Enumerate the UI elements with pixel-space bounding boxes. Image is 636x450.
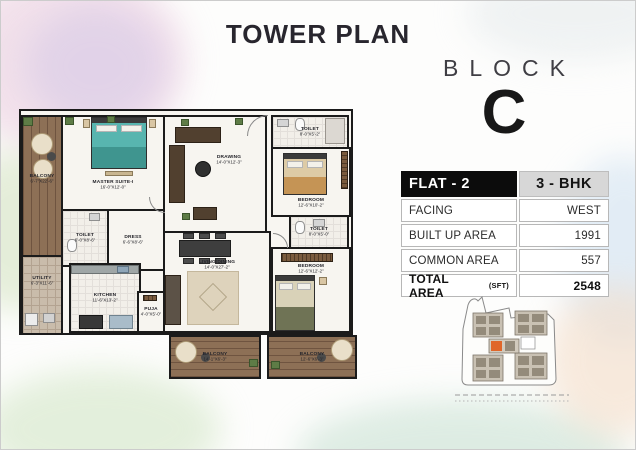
toilet-sink <box>313 219 325 227</box>
wardrobe <box>341 151 348 189</box>
pillow <box>307 161 323 168</box>
master-bed-headboard <box>92 118 146 123</box>
toilet-sink <box>89 213 100 221</box>
room-label: BALCONY <box>203 352 228 357</box>
room-label: TOILET <box>310 227 328 232</box>
pillow <box>96 125 117 132</box>
facing-value: WEST <box>519 199 609 222</box>
dining-chair <box>183 258 194 264</box>
balcony-table <box>47 152 56 161</box>
room-dims: 6'-6"X8'-6" <box>122 240 142 245</box>
bedroom-right-bed <box>283 153 327 195</box>
room-dims: 6'-7"X22'-6" <box>31 179 54 184</box>
bed-headboard <box>284 154 326 159</box>
pillow <box>121 125 142 132</box>
master-bed <box>91 117 147 169</box>
builtup-label: BUILT UP AREA <box>401 224 517 247</box>
common-label: COMMON AREA <box>401 249 517 272</box>
room-dims: 14'-0"X12'-3" <box>216 161 241 166</box>
bed-headboard <box>276 276 314 281</box>
living-sofa <box>165 275 181 325</box>
plant-icon <box>271 361 280 369</box>
room-label: TOILET <box>76 233 94 238</box>
room-label: PUJA <box>144 307 157 312</box>
room-dims: 11'-6"X13'-2" <box>92 298 117 303</box>
room-toilet-master: TOILET6'-0"X8'-6" <box>61 209 109 267</box>
bed-blanket <box>284 177 326 194</box>
key-plan-map <box>453 293 571 407</box>
dining-chair <box>183 233 194 239</box>
room-dims: 12'-6"X12'-2" <box>298 269 323 274</box>
watercolor-green-bottom <box>0 369 221 450</box>
stove <box>79 315 103 329</box>
block-letter: C <box>399 84 609 143</box>
kitchen-sink <box>117 266 129 273</box>
room-label: UTILITY <box>32 276 51 281</box>
nightstand <box>83 119 90 128</box>
plant-icon <box>235 118 243 125</box>
room-label: TOILET <box>301 127 319 132</box>
drawing-sofa-left <box>169 145 185 203</box>
room-dress: DRESS6'-6"X8'-6" <box>107 209 167 271</box>
builtup-value: 1991 <box>519 224 609 247</box>
key-plan <box>453 293 571 412</box>
plant-icon <box>107 116 115 123</box>
utility-sink <box>43 313 55 323</box>
room-dims: 12'-6"X6'-3" <box>301 357 324 362</box>
room-label: MASTER SUITE-I <box>93 180 134 185</box>
drawing-sofa-top <box>175 127 221 143</box>
room-dims: 8'-0"X5'-0" <box>309 232 329 237</box>
dining-chair <box>215 233 226 239</box>
balcony-chair <box>331 339 353 361</box>
plant-icon <box>182 213 190 220</box>
plant-icon <box>249 359 258 367</box>
fridge <box>109 315 133 329</box>
flat-details-table: FLAT - 2 3 - BHK FACING WEST BUILT UP AR… <box>401 171 609 297</box>
room-label: BALCONY <box>300 352 325 357</box>
room-dims: 14'-1"X6'-3" <box>204 357 227 362</box>
washing-machine <box>25 313 38 326</box>
pillow <box>297 283 311 290</box>
plant-icon <box>65 117 74 125</box>
nightstand <box>319 277 327 285</box>
wardrobe <box>281 253 333 262</box>
room-label: KITCHEN <box>94 293 116 298</box>
flat-number-cell: FLAT - 2 <box>401 171 517 197</box>
room-label: DRESS <box>124 235 141 240</box>
drawing-seat-bottom <box>193 207 217 220</box>
bed-blanket <box>276 307 314 330</box>
dining-table <box>179 240 231 257</box>
total-label-suffix: (SFT) <box>489 281 509 290</box>
room-label: DRAWING <box>217 155 241 160</box>
room-label: BALCONY <box>30 174 55 179</box>
room-label: BEDROOM <box>298 198 324 203</box>
balcony-chair <box>175 341 197 363</box>
room-label: BEDROOM <box>298 263 324 268</box>
plant-icon <box>23 117 33 126</box>
shower-area <box>325 118 345 144</box>
floor-plan: BALCONY6'-7"X22'-6" UTILITY6'-3"X11'-6" … <box>19 109 359 381</box>
room-dims: 8'-0"X5'-2" <box>300 132 320 137</box>
bedroom-bottom-bed <box>275 275 315 331</box>
room-dims: 12'-6"X10'-2" <box>298 204 323 209</box>
page-title: TOWER PLAN <box>1 19 635 50</box>
room-dims: 4'-0"X5'-0" <box>141 312 161 317</box>
room-dims: 14'-0"X27'-2" <box>204 266 229 271</box>
facing-label: FACING <box>401 199 517 222</box>
highlighted-flat <box>491 341 502 351</box>
room-dims: 6'-3"X11'-6" <box>31 282 54 287</box>
nightstand <box>149 119 156 128</box>
pillow <box>287 161 303 168</box>
master-bed-blanket <box>92 147 146 168</box>
toilet-wc <box>295 221 305 234</box>
bed-bench <box>105 171 133 176</box>
block-heading: BLOCK C <box>399 55 609 143</box>
pillow <box>279 283 293 290</box>
brochure-page: TOWER PLAN BLOCK C FLAT - 2 3 - BHK FACI… <box>0 0 636 450</box>
lift-core <box>521 337 535 349</box>
flat-type-cell: 3 - BHK <box>519 171 609 197</box>
room-dims: 16'-0"X12'-0" <box>100 185 125 190</box>
room-dims: 6'-0"X8'-6" <box>75 238 95 243</box>
coffee-table <box>195 161 211 177</box>
dining-chair <box>199 233 210 239</box>
plant-icon <box>181 119 189 126</box>
puja-shrine <box>143 295 157 301</box>
common-value: 557 <box>519 249 609 272</box>
toilet-sink <box>277 119 289 127</box>
room-label: LIVING/DINING <box>199 260 235 265</box>
